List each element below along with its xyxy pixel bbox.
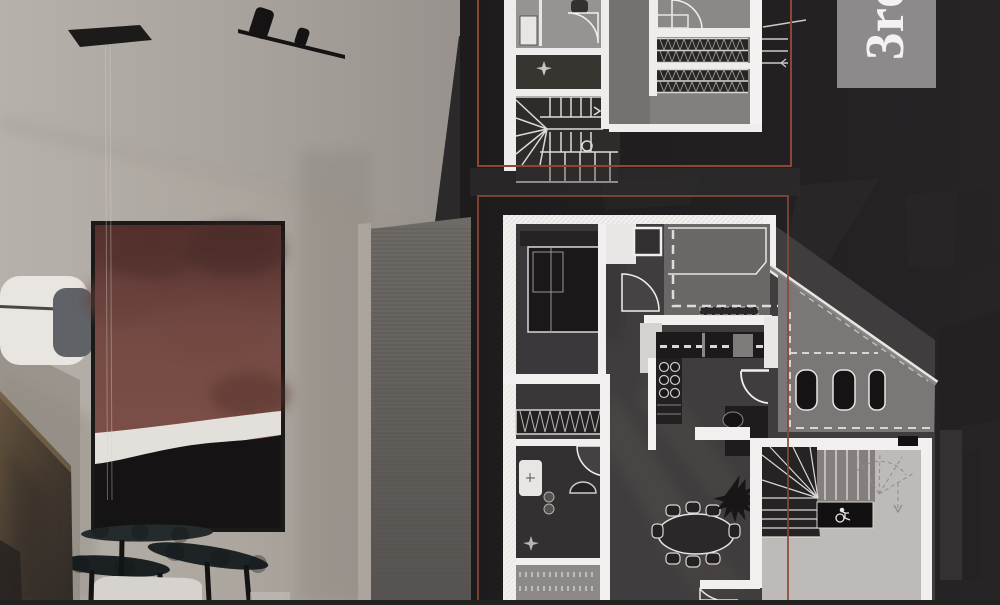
svg-text:3rd floor: 3rd floor: [854, 0, 915, 60]
